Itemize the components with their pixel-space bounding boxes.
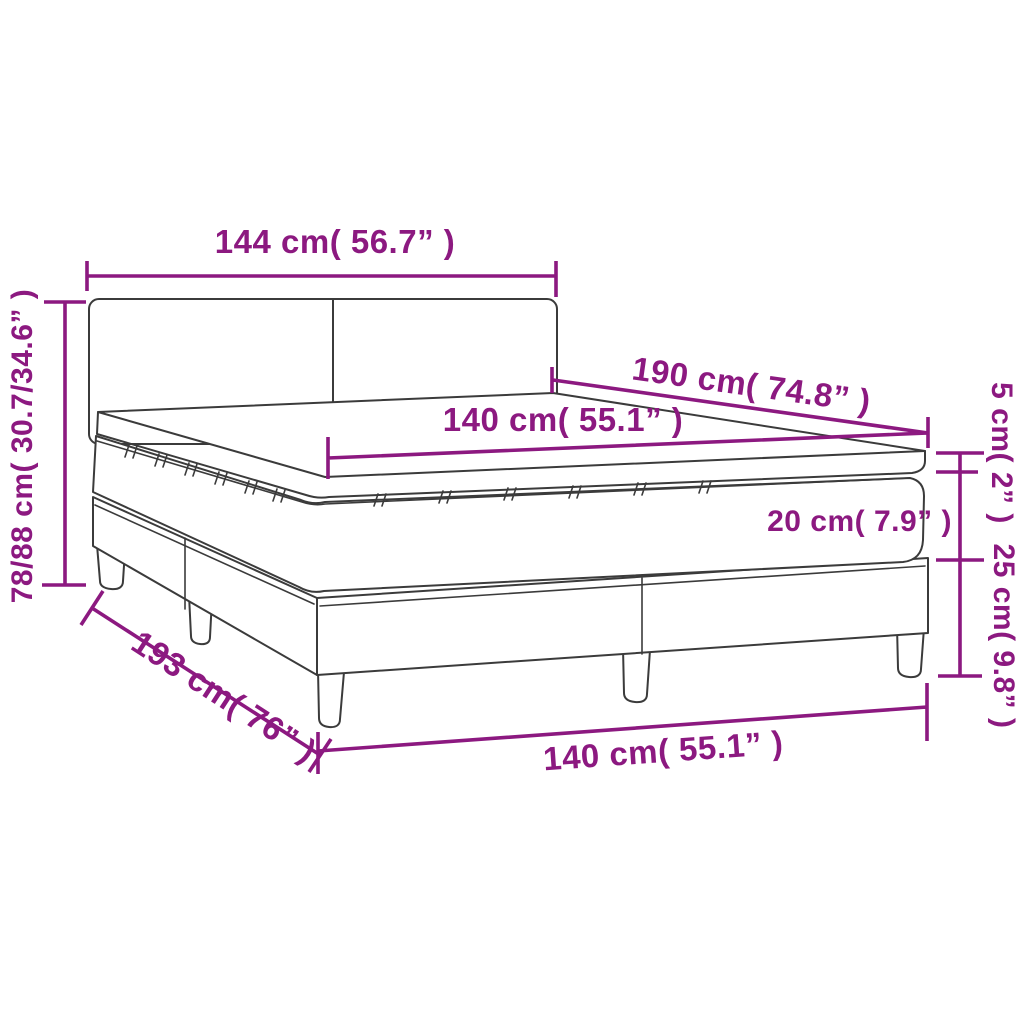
bed-leg-4 [623, 648, 650, 702]
dim-height-stack-line [936, 453, 984, 676]
dim-total-height: 78/88 cm( 30.7/34.6” ) [6, 289, 86, 604]
product-dimension-diagram: 144 cm( 56.7” ) 78/88 cm( 30.7/34.6” ) 1… [0, 0, 1024, 1024]
dim-topper-height-label: 5 cm( 2” ) [985, 382, 1018, 524]
dim-base-width: 140 cm( 55.1” ) [318, 683, 927, 777]
dim-headboard-width-line [87, 261, 556, 297]
dim-headboard-width: 144 cm( 56.7” ) [87, 223, 556, 297]
dim-mattress-width-label: 140 cm( 55.1” ) [443, 401, 683, 438]
bed-diagram-svg: 144 cm( 56.7” ) 78/88 cm( 30.7/34.6” ) 1… [0, 0, 1024, 1024]
dim-headboard-width-label: 144 cm( 56.7” ) [215, 223, 455, 260]
dim-base-height-label: 25 cm( 9.8” ) [987, 544, 1020, 729]
dim-total-height-label: 78/88 cm( 30.7/34.6” ) [6, 289, 39, 604]
dim-mattress-height-label: 20 cm( 7.9” ) [767, 505, 952, 538]
dim-total-height-line [42, 302, 86, 585]
bed-leg-3 [318, 670, 344, 727]
